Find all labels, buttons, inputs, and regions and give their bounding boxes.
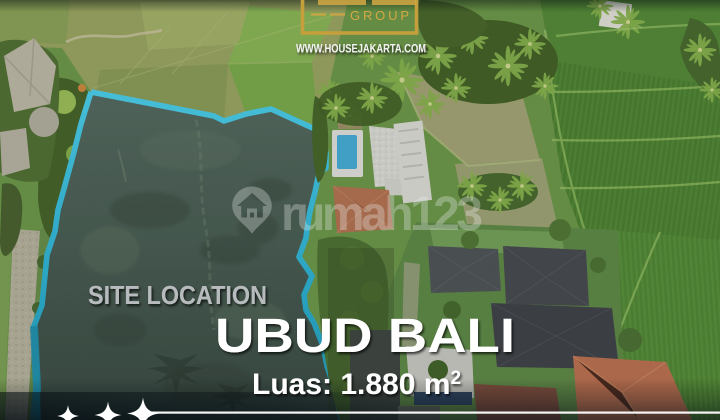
svg-text:Luas: 1.880 m2: Luas: 1.880 m2 bbox=[252, 368, 461, 401]
svg-text:rumah123: rumah123 bbox=[281, 188, 483, 241]
svg-text:UBUD BALI: UBUD BALI bbox=[215, 310, 515, 363]
svg-text:SITE LOCATION: SITE LOCATION bbox=[88, 282, 267, 310]
svg-text:WWW.HOUSEJAKARTA.COM: WWW.HOUSEJAKARTA.COM bbox=[296, 42, 426, 56]
svg-text:GROUP: GROUP bbox=[350, 8, 409, 23]
